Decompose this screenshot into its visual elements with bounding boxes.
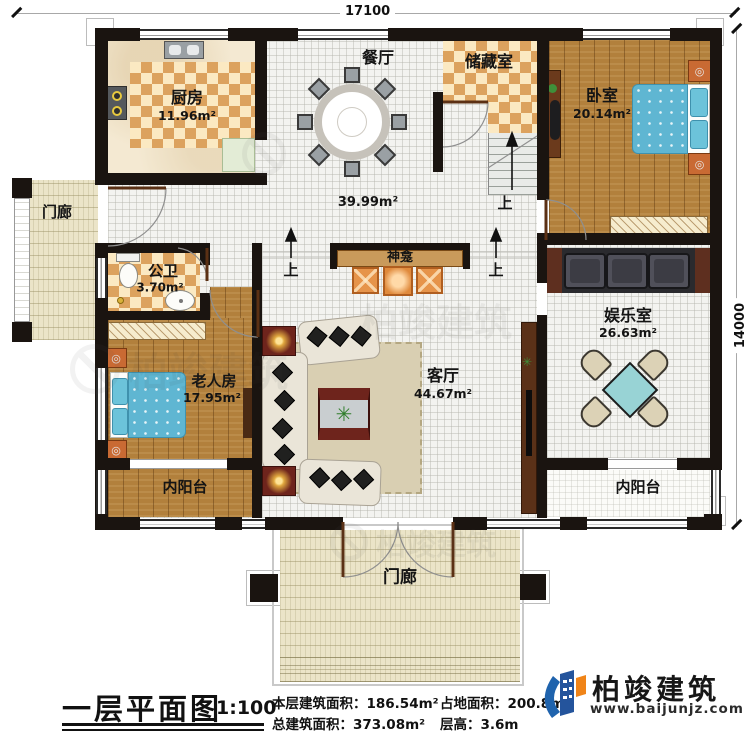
wall [95,243,210,253]
wall [108,311,210,320]
wall [537,245,547,283]
toilet-tank-icon [116,253,140,262]
plan-scale: 1:100 [216,697,276,719]
watermark: 柏竣建筑 [330,520,496,564]
company-website: www.baijunjz.com [590,701,744,717]
wall [710,28,722,470]
nightstand-icon: ◎ [688,60,711,82]
porch-left-railing [14,198,30,322]
porch-column [12,322,32,342]
dimension-line-right [736,30,737,527]
room-label-porch-bottom: 门廊 [383,569,417,588]
porch-column [250,574,278,602]
room-label-kitchen: 厨房 [171,89,203,107]
wall [200,253,210,265]
watermark [242,132,286,176]
window [96,258,107,298]
window [487,519,560,529]
dining-chair [297,114,313,130]
room-label-living: 客厅 [427,367,459,385]
plan-title: 一层平面图 [62,686,222,728]
bed-pillow [690,120,708,149]
room-area-hall: 39.99m² [338,196,398,210]
room-label-bedroom: 卧室 [586,87,618,105]
wall [95,517,140,530]
room-area-bathroom: 3.70m² [136,281,183,294]
stat-floor-height: 层高：3.6m [440,713,518,733]
window [711,470,721,514]
room-area-bedroom: 20.14m² [573,107,631,121]
wall [677,458,722,470]
room-label-balcony-left: 内阳台 [162,479,207,496]
room-label-porch-left: 门廊 [42,204,72,221]
window [96,466,107,514]
window [583,29,670,40]
watermark-logo-icon [70,344,120,394]
company-logo-icon [536,666,588,724]
window [140,519,215,529]
watermark: 柏竣建筑 [360,292,512,347]
end-table-lamp-icon [262,466,296,496]
stat-value: 3.6m [481,717,519,733]
shrine-seat [352,267,379,294]
step-up-label: 上 [488,262,503,279]
stat-value: 186.54m² [367,696,439,712]
stat-value: 373.08m² [353,717,425,733]
wall [687,517,722,530]
stat-floor-area: 本层建筑面积：186.54m² [272,692,439,712]
sofa-cushion [606,253,648,289]
stat-label: 占地面积： [440,696,508,712]
dining-chair [344,161,360,177]
wardrobe [108,322,206,340]
shrine-niche-wall [463,243,470,269]
shrine-niche-wall [330,243,337,269]
sofa-cushion [648,253,690,289]
wall [215,517,242,530]
porch-column [520,574,546,600]
step-up-label: 上 [283,262,298,279]
sofa-cushion [564,253,606,289]
wall [200,293,210,311]
nightstand-icon: ◎ [105,440,127,460]
stairs-up-label: 上 [497,195,512,212]
bed-pillow [112,408,128,435]
watermark-text: 柏竣建筑 [360,292,512,347]
wall [547,458,608,470]
wall [388,28,583,41]
dining-table-center [337,107,367,137]
floor-plan: 17100 14000 [0,0,750,736]
watermark: 柏竣建筑 [70,340,288,398]
sofa [298,459,382,507]
porch-steps [280,650,520,682]
room-label-entertainment: 娱乐室 [604,307,652,325]
wall [95,28,108,185]
toilet-icon [119,263,138,288]
wall [255,40,267,140]
room-label-storage: 储藏室 [465,53,513,71]
room-area-living: 44.67m² [414,387,472,401]
tv-icon [526,390,532,456]
elder-corridor-floor [210,287,252,318]
wall [227,458,252,470]
room-label-bathroom: 公卫 [148,263,178,280]
title-underline [62,729,264,731]
floor-drain-icon [117,297,124,304]
window [140,29,228,40]
watermark-logo-icon [330,523,368,561]
sliding-door-threshold [608,459,677,469]
plant-icon [548,84,557,93]
dining-chair [344,67,360,83]
room-label-shrine: 神龛 [387,251,413,265]
dining-chair [391,114,407,130]
storage-floor [488,102,537,133]
wall [560,517,587,530]
wall [433,92,443,172]
title-underline [62,723,264,726]
plant-icon: ✳ [522,356,535,369]
wall [95,458,130,470]
room-area-kitchen: 11.96m² [158,109,216,123]
stat-label: 层高： [440,717,481,733]
watermark-text: 柏竣建筑 [128,340,288,398]
nightstand-icon: ◎ [688,153,711,175]
watermark-text: 柏竣建筑 [376,520,496,564]
window [298,29,388,40]
wall [537,233,722,245]
window [242,519,265,529]
shrine-seat [416,267,443,294]
stairs [488,133,537,195]
stove-icon [107,86,127,120]
room-label-balcony-right: 内阳台 [615,479,660,496]
desk-chair-icon [550,100,560,140]
room-area-entertainment: 26.63m² [599,326,657,340]
wall [537,315,547,518]
stat-label: 本层建筑面积： [272,696,367,712]
room-label-dining: 餐厅 [362,49,394,67]
bed [632,84,688,154]
stat-total-area: 总建筑面积：373.08m² [272,713,425,733]
wall [537,28,549,200]
watermark-logo-icon [242,132,286,176]
porch-column [12,178,32,198]
sliding-door-threshold [130,459,227,469]
window [587,519,687,529]
dimension-right-value: 14000 [733,298,748,353]
stat-label: 总建筑面积： [272,717,353,733]
bed-pillow [690,88,708,117]
kitchen-sink-icon [164,41,204,59]
dimension-top-value: 17100 [340,4,395,19]
coffee-table: ✳ [318,388,370,440]
